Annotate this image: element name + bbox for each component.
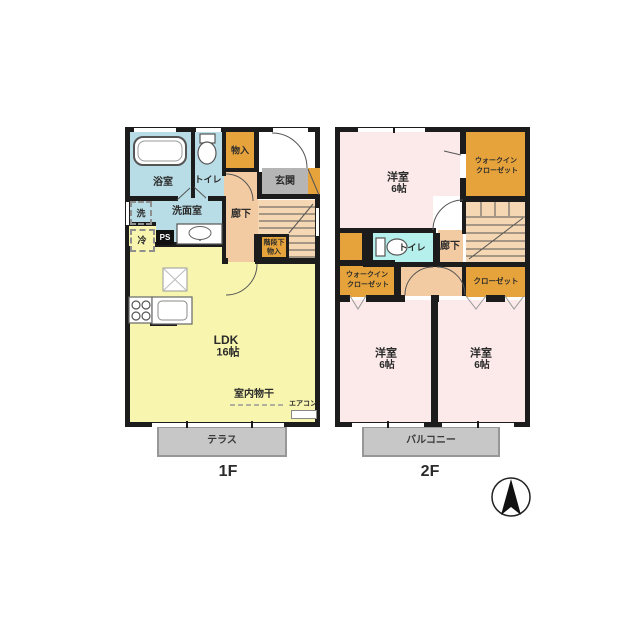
wall: [208, 196, 226, 201]
label-understairs-1: 階段下: [264, 240, 285, 247]
room-bath: [130, 132, 192, 198]
stairs-2f: [466, 202, 525, 262]
wall: [462, 267, 466, 296]
room-label-bedroom-left-size: 6帖: [379, 361, 395, 371]
north-arrow-icon: [492, 478, 530, 516]
label-wic-mid-1: ウォークイン: [346, 272, 388, 279]
wall: [486, 295, 505, 302]
room-label-closet: クローゼット: [474, 277, 519, 285]
window: [134, 128, 176, 132]
entrance-door-opening: [273, 128, 308, 132]
window: [316, 208, 319, 236]
label-terrace: テラス: [207, 436, 237, 446]
aircon-unit: [291, 410, 317, 419]
room-label-hallway-1f: 廊下: [231, 210, 251, 220]
room-label-bedroom-right-size: 6帖: [474, 361, 490, 371]
wall: [257, 194, 320, 199]
wall: [222, 200, 226, 262]
label-understairs-2: 物入: [267, 249, 281, 256]
label-washer: 洗: [136, 210, 145, 219]
label-wic-top-2: クローゼット: [476, 168, 518, 175]
room-label-bedroom-left: 洋室: [375, 349, 397, 360]
wall: [460, 132, 466, 154]
label-wic-mid-2: クローゼット: [347, 282, 389, 289]
wall: [255, 258, 315, 264]
bedroom-entry-zone: [433, 196, 463, 232]
room-label-storage: 物入: [231, 147, 249, 156]
wall: [366, 295, 405, 302]
window-tick: [251, 421, 253, 428]
wall: [363, 262, 463, 267]
label-indoor-drying: 室内物干: [234, 390, 274, 400]
closet-nook: [340, 233, 362, 260]
plan-symbols-layer: [0, 0, 640, 640]
room-label-hallway-2f: 廊下: [440, 242, 460, 252]
room-label-bath: 浴室: [153, 178, 173, 188]
label-balcony: バルコニー: [406, 436, 456, 446]
room-hallway-2f-h: [395, 262, 465, 296]
room-label-ldk: LDK: [214, 334, 239, 346]
wall: [394, 262, 401, 296]
room-label-bedroom-main: 洋室: [387, 173, 409, 184]
wall: [191, 132, 195, 198]
wall: [463, 262, 525, 267]
wall: [431, 300, 438, 422]
wall: [362, 233, 373, 262]
room-label-entrance: 玄関: [275, 177, 295, 187]
room-toilet-1f: [192, 132, 224, 198]
wall: [340, 228, 436, 233]
window-tick: [393, 127, 395, 133]
room-label-bedroom-right: 洋室: [470, 349, 492, 360]
room-wic-top: [466, 132, 525, 198]
terrace-sliding-window: [152, 423, 284, 427]
floor1-label: 1F: [219, 464, 238, 480]
understairs-storage: [259, 234, 289, 260]
room-label-toilet-2f: トイレ: [398, 244, 425, 253]
room-label-bedroom-main-size: 6帖: [391, 185, 407, 195]
room-label-washroom: 洗面室: [172, 207, 202, 217]
kitchen-counter-wall: [150, 318, 177, 326]
window: [196, 128, 221, 132]
wall: [466, 196, 525, 202]
wall: [340, 295, 350, 302]
wall: [462, 200, 466, 234]
label-fridge: 冷: [137, 237, 146, 246]
floor-plan-canvas: 浴室 トイレ 物入 玄関 洗面室 洗 冷 PS 廊下 階段下 物入 LDK 16…: [0, 0, 640, 640]
label-aircon: エアコン: [289, 401, 317, 408]
window: [126, 202, 129, 225]
floor2-label: 2F: [421, 464, 440, 480]
window-tick: [477, 421, 479, 428]
wall: [222, 258, 228, 264]
room-label-toilet-1f: トイレ: [194, 176, 221, 185]
wall: [222, 168, 259, 172]
wall: [254, 132, 259, 172]
wall: [433, 233, 440, 262]
window-tick: [186, 421, 188, 428]
label-wic-top-1: ウォークイン: [475, 158, 517, 165]
label-pipe-space: PS: [160, 234, 171, 242]
shoe-cabinet: [308, 168, 320, 196]
window-tick: [387, 421, 389, 428]
window: [358, 128, 425, 132]
room-label-ldk-size: 16帖: [216, 348, 239, 359]
